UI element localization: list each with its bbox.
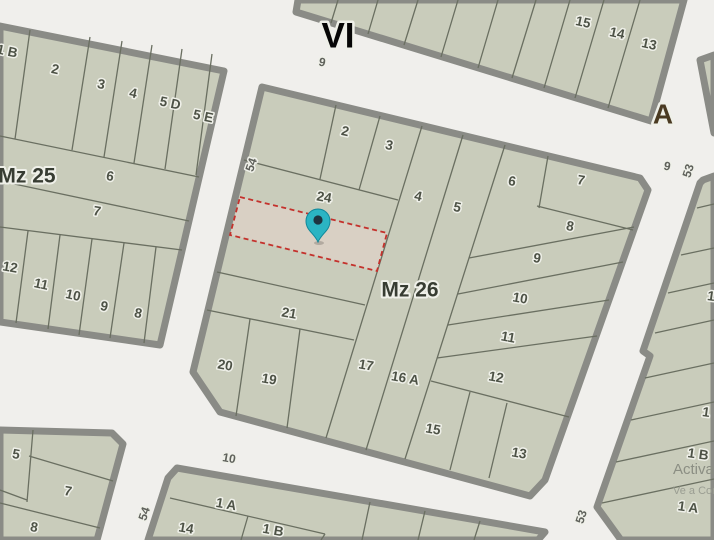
street-name-vi: VI — [321, 16, 354, 55]
parcel-label-12: 12 — [487, 368, 504, 385]
parcel-label-1-b: 1 B — [687, 445, 710, 463]
parcel-label-15: 15 — [424, 420, 442, 437]
parcel-label-20: 20 — [216, 356, 233, 373]
pin-center-dot — [313, 215, 322, 224]
block-label-mz26: Mz 26 — [381, 279, 438, 302]
parcel-label-1-a: 1 A — [677, 498, 700, 516]
parcel-label-10: 10 — [64, 286, 82, 304]
parcel-label-21: 21 — [280, 304, 298, 321]
parcel-label-1: 1 — [706, 288, 714, 304]
parcel-label-17: 17 — [357, 356, 374, 373]
parcel-label-19: 19 — [260, 370, 277, 387]
parcel-label-12: 12 — [1, 258, 18, 275]
map-canvas[interactable]: 1 B2345 D5 E6712111098151413232445678910… — [0, 0, 714, 540]
street-label-10: 10 — [221, 450, 237, 466]
parcel-label-1-b: 1 B — [0, 42, 19, 61]
parcel-label-13: 13 — [510, 444, 528, 461]
street-name-a: A — [653, 98, 673, 129]
parcel-label-10: 10 — [511, 289, 528, 306]
parcel-label-24: 24 — [315, 188, 333, 205]
pin-shadow — [314, 241, 324, 245]
block-label-mz25: Mz 25 — [0, 165, 56, 188]
parcel-label-14: 14 — [177, 519, 195, 536]
